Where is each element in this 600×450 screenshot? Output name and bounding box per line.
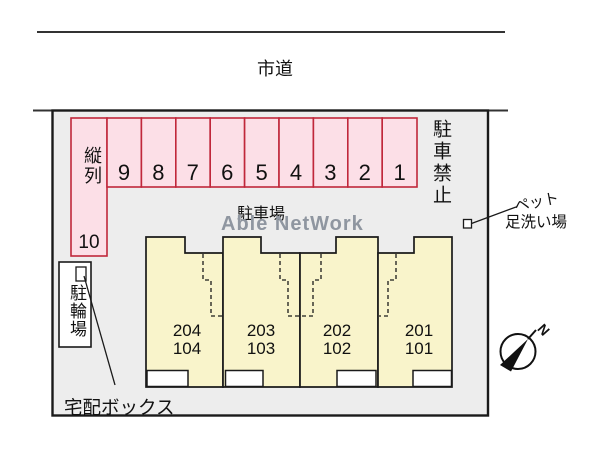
compass-icon: N (500, 321, 553, 372)
building-unit-201-outline (378, 237, 452, 387)
porch-unit-203 (226, 371, 264, 387)
stall-number-1: 1 (383, 160, 417, 186)
compass-north-label: N (534, 321, 553, 339)
stall-number-5: 5 (245, 160, 279, 186)
unit-upper-number: 201 (405, 321, 433, 340)
stall-number-4: 4 (279, 160, 313, 186)
stall-number-8: 8 (141, 160, 175, 186)
porch-unit-204 (147, 371, 188, 387)
no-parking-label: 駐車禁止 (427, 119, 454, 207)
unit-lower-number: 102 (323, 339, 351, 358)
unit-lower-number: 103 (247, 339, 275, 358)
unit-upper-number: 203 (247, 321, 275, 340)
unit-lower-number: 104 (173, 339, 201, 358)
unit-label-203-103: 203 103 (220, 322, 302, 358)
bike-parking-label: 駐輪場 (64, 284, 89, 338)
unit-lower-number: 101 (405, 339, 433, 358)
stall-number-7: 7 (176, 160, 210, 186)
pet-wash-marker (464, 220, 472, 229)
unit-upper-number: 202 (323, 321, 351, 340)
tandem-stall-number: 10 (71, 232, 107, 254)
stall-number-3: 3 (313, 160, 347, 186)
unit-upper-number: 204 (173, 321, 201, 340)
watermark-text: Able NetWork (221, 213, 364, 236)
building-unit-202-outline (300, 237, 378, 387)
unit-label-202-102: 202 102 (296, 322, 378, 358)
unit-label-204-104: 204 104 (146, 322, 228, 358)
unit-label-201-101: 201 101 (378, 322, 460, 358)
site-plan: N 市道 駐車場 Able NetWork 駐車禁止 縦列 10 9 8 7 6… (0, 0, 600, 450)
stall-number-6: 6 (210, 160, 244, 186)
delivery-box-label: 宅配ボックス (64, 394, 174, 420)
porch-unit-202 (337, 371, 376, 387)
tandem-stall-label: 縦列 (79, 146, 105, 186)
stall-number-9: 9 (107, 160, 141, 186)
stall-number-2: 2 (348, 160, 382, 186)
pet-wash-label-line2: 足洗い場 (505, 210, 567, 232)
road-label: 市道 (240, 55, 310, 81)
porch-unit-201 (413, 371, 452, 387)
